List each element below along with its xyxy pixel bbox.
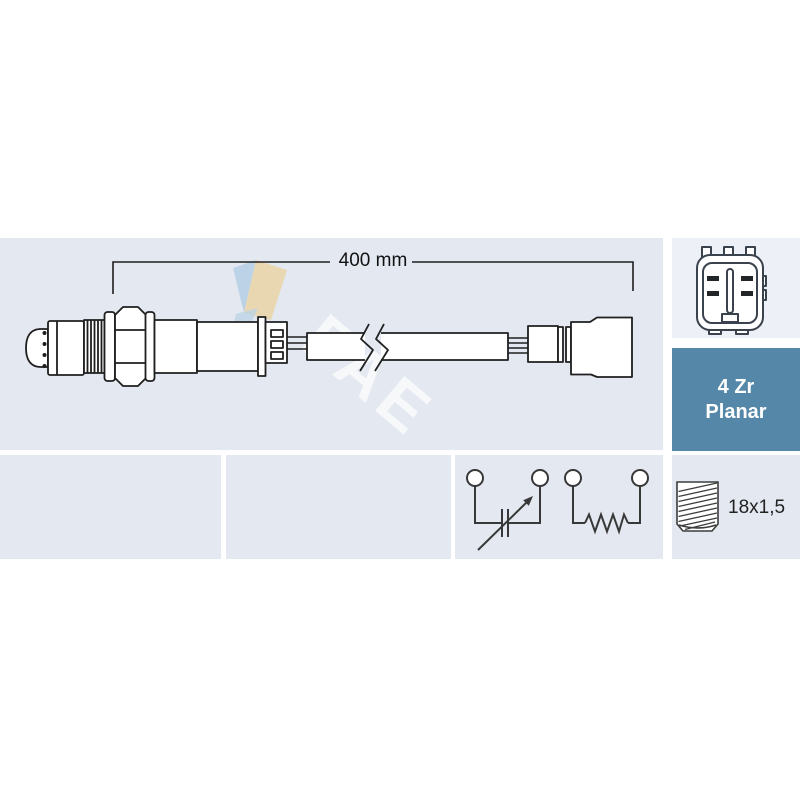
connector-face-icon xyxy=(672,238,800,338)
connector-plug xyxy=(571,318,632,378)
housing-rear xyxy=(197,322,258,371)
sensor-shield xyxy=(48,321,84,375)
badge-line-1: 4 Zr xyxy=(718,375,755,400)
housing-end-cap xyxy=(258,317,266,376)
thread-size-label: 18x1,5 xyxy=(728,497,798,519)
dimension-label: 400 mm xyxy=(323,250,423,272)
thread-panel: 18x1,5 xyxy=(672,455,800,559)
wires-right xyxy=(508,338,528,353)
plug-ribs xyxy=(558,327,571,362)
heater-resistor-symbol-icon xyxy=(565,470,648,532)
empty-cell-1 xyxy=(0,455,221,559)
grommet xyxy=(528,326,558,362)
thread-section xyxy=(84,320,107,373)
badge-line-2: Planar xyxy=(705,400,766,425)
washer-left xyxy=(105,312,116,381)
product-image: FAE xyxy=(0,0,800,800)
empty-cell-2 xyxy=(226,455,451,559)
hex-nut xyxy=(115,307,146,386)
circuit-panel xyxy=(455,455,663,559)
housing-front xyxy=(155,320,198,373)
circuit-symbols xyxy=(455,455,663,559)
wire-outlet xyxy=(266,322,288,363)
type-badge: 4 Zr Planar xyxy=(672,348,800,451)
watermark-text: FAE xyxy=(289,300,449,450)
washer-right xyxy=(146,312,155,381)
sensor-cell-symbol-icon xyxy=(467,470,548,550)
connector-panel xyxy=(672,238,800,338)
main-diagram-panel: FAE xyxy=(0,238,663,450)
